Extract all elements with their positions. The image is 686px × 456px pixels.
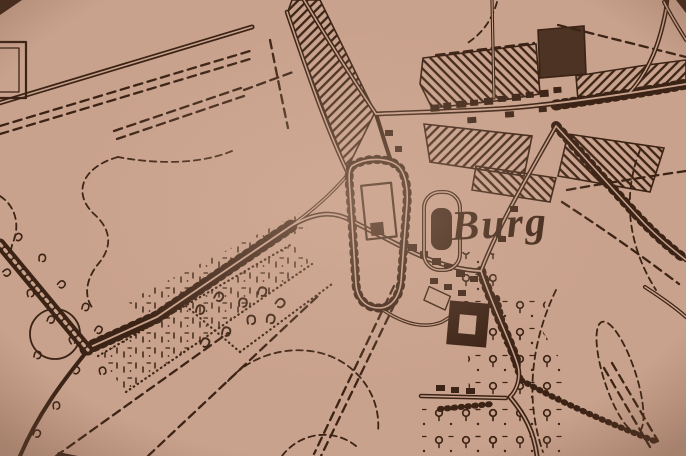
map-canvas: Burg — [0, 0, 686, 456]
photo-vignette — [0, 0, 686, 456]
historic-map: Burg — [0, 0, 686, 456]
